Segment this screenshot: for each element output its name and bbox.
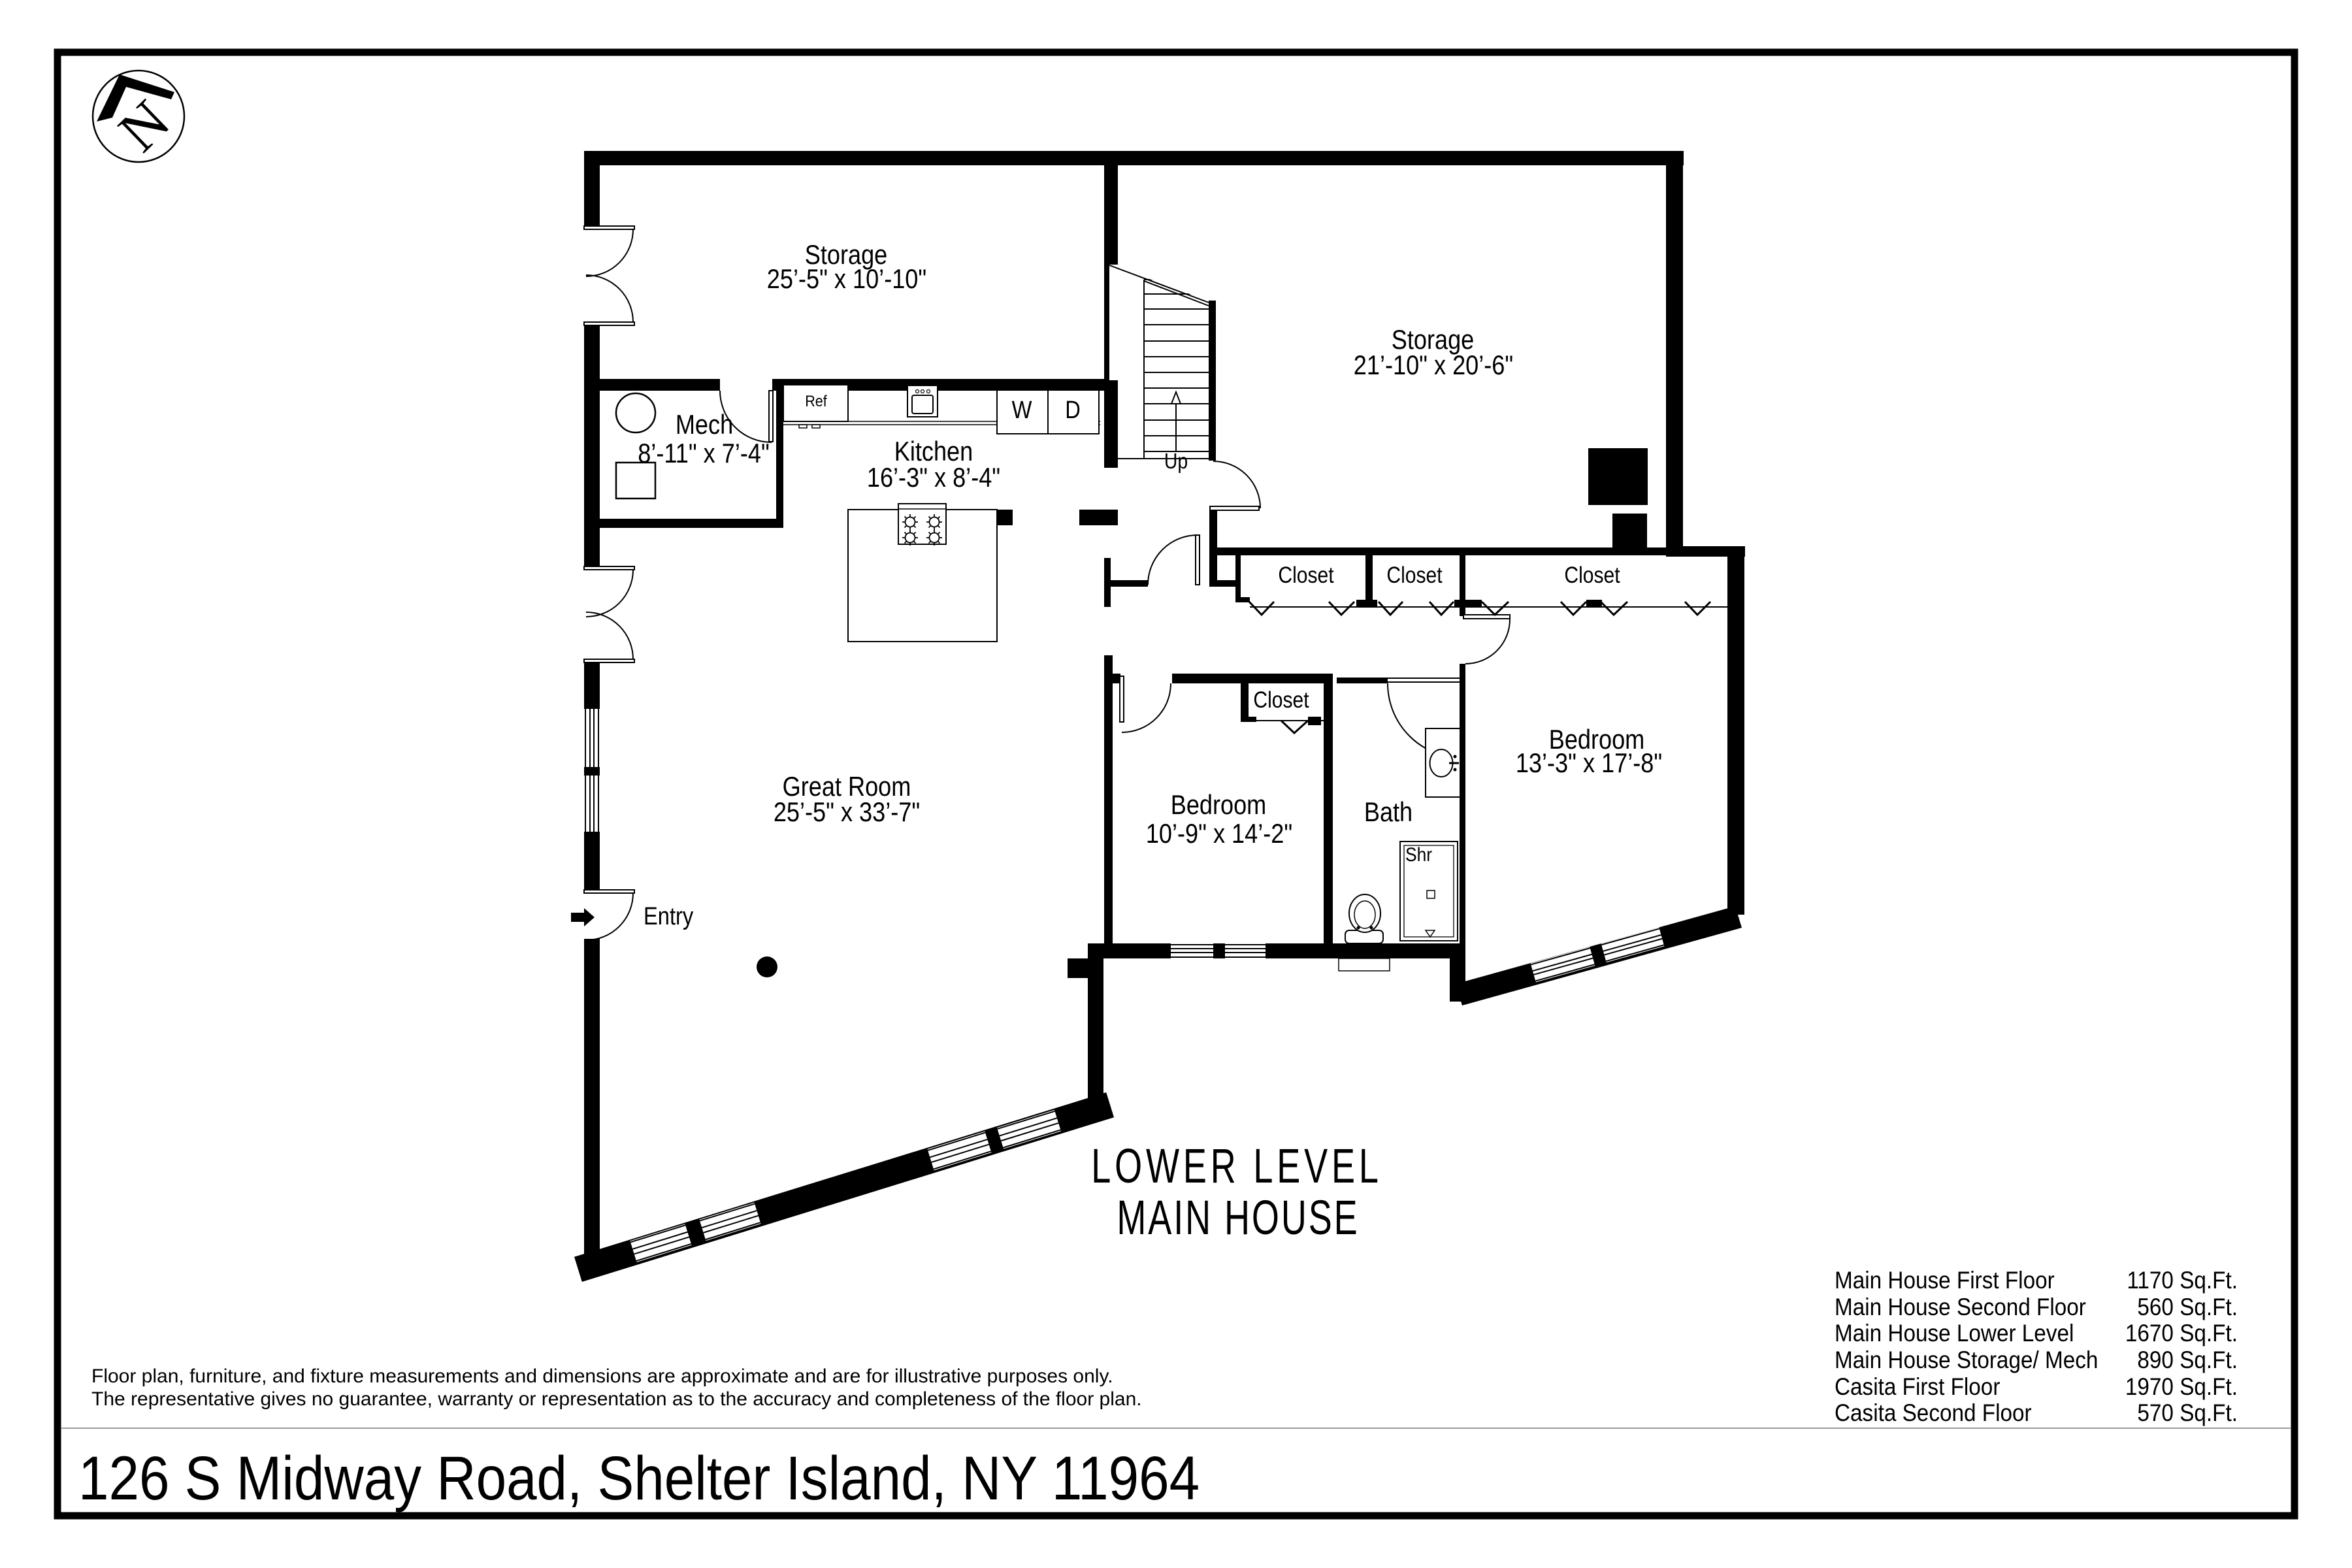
svg-text:21’-10" x 20’-6": 21’-10" x 20’-6" [1354, 351, 1513, 381]
svg-text:Bedroom: Bedroom [1171, 791, 1267, 821]
svg-text:Casita Second Floor: Casita Second Floor [1835, 1399, 2032, 1426]
svg-text:25’-5" x 10’-10": 25’-5" x 10’-10" [767, 265, 926, 295]
svg-text:560 Sq.Ft.: 560 Sq.Ft. [2137, 1294, 2238, 1320]
svg-text:1670 Sq.Ft.: 1670 Sq.Ft. [2125, 1320, 2238, 1347]
svg-text:13’-3" x 17’-8": 13’-3" x 17’-8" [1516, 749, 1662, 779]
svg-text:1170 Sq.Ft.: 1170 Sq.Ft. [2127, 1267, 2238, 1294]
svg-text:Main House Second Floor: Main House Second Floor [1835, 1294, 2086, 1320]
svg-text:25’-5" x 33’-7": 25’-5" x 33’-7" [774, 798, 920, 828]
svg-text:890 Sq.Ft.: 890 Sq.Ft. [2137, 1347, 2238, 1373]
svg-text:Floor plan, furniture, and fix: Floor plan, furniture, and fixture measu… [91, 1365, 1113, 1387]
svg-text:Shr: Shr [1405, 843, 1432, 865]
svg-text:10’-9" x 14’-2": 10’-9" x 14’-2" [1146, 819, 1292, 849]
svg-text:16’-3" x 8’-4": 16’-3" x 8’-4" [867, 463, 1000, 493]
svg-text:Ref: Ref [805, 392, 827, 410]
svg-text:W: W [1012, 396, 1032, 424]
svg-text:D: D [1065, 396, 1081, 424]
svg-text:Casita First Floor: Casita First Floor [1835, 1373, 2001, 1400]
svg-text:570 Sq.Ft.: 570 Sq.Ft. [2137, 1399, 2238, 1426]
svg-text:8’-11" x 7’-4": 8’-11" x 7’-4" [638, 439, 770, 469]
svg-text:Closet: Closet [1278, 562, 1333, 588]
svg-text:Main House Lower Level: Main House Lower Level [1835, 1320, 2074, 1347]
svg-text:The representative gives no gu: The representative gives no guarantee, w… [91, 1388, 1142, 1410]
svg-text:Closet: Closet [1564, 562, 1620, 588]
svg-text:Closet: Closet [1386, 562, 1442, 588]
svg-text:LOWER LEVEL: LOWER LEVEL [1091, 1139, 1382, 1193]
svg-text:126 S Midway Road, Shelter Isl: 126 S Midway Road, Shelter Island, NY 11… [78, 1443, 1200, 1512]
svg-text:Mech: Mech [676, 410, 733, 440]
svg-text:Up: Up [1164, 449, 1188, 474]
svg-text:Main House Storage/ Mech: Main House Storage/ Mech [1835, 1347, 2098, 1373]
svg-text:Main House First Floor: Main House First Floor [1835, 1267, 2055, 1294]
svg-text:1970 Sq.Ft.: 1970 Sq.Ft. [2125, 1373, 2238, 1400]
svg-text:Entry: Entry [644, 902, 694, 930]
svg-text:Closet: Closet [1253, 687, 1309, 713]
svg-text:MAIN HOUSE: MAIN HOUSE [1117, 1190, 1359, 1245]
svg-text:Bath: Bath [1364, 798, 1413, 828]
